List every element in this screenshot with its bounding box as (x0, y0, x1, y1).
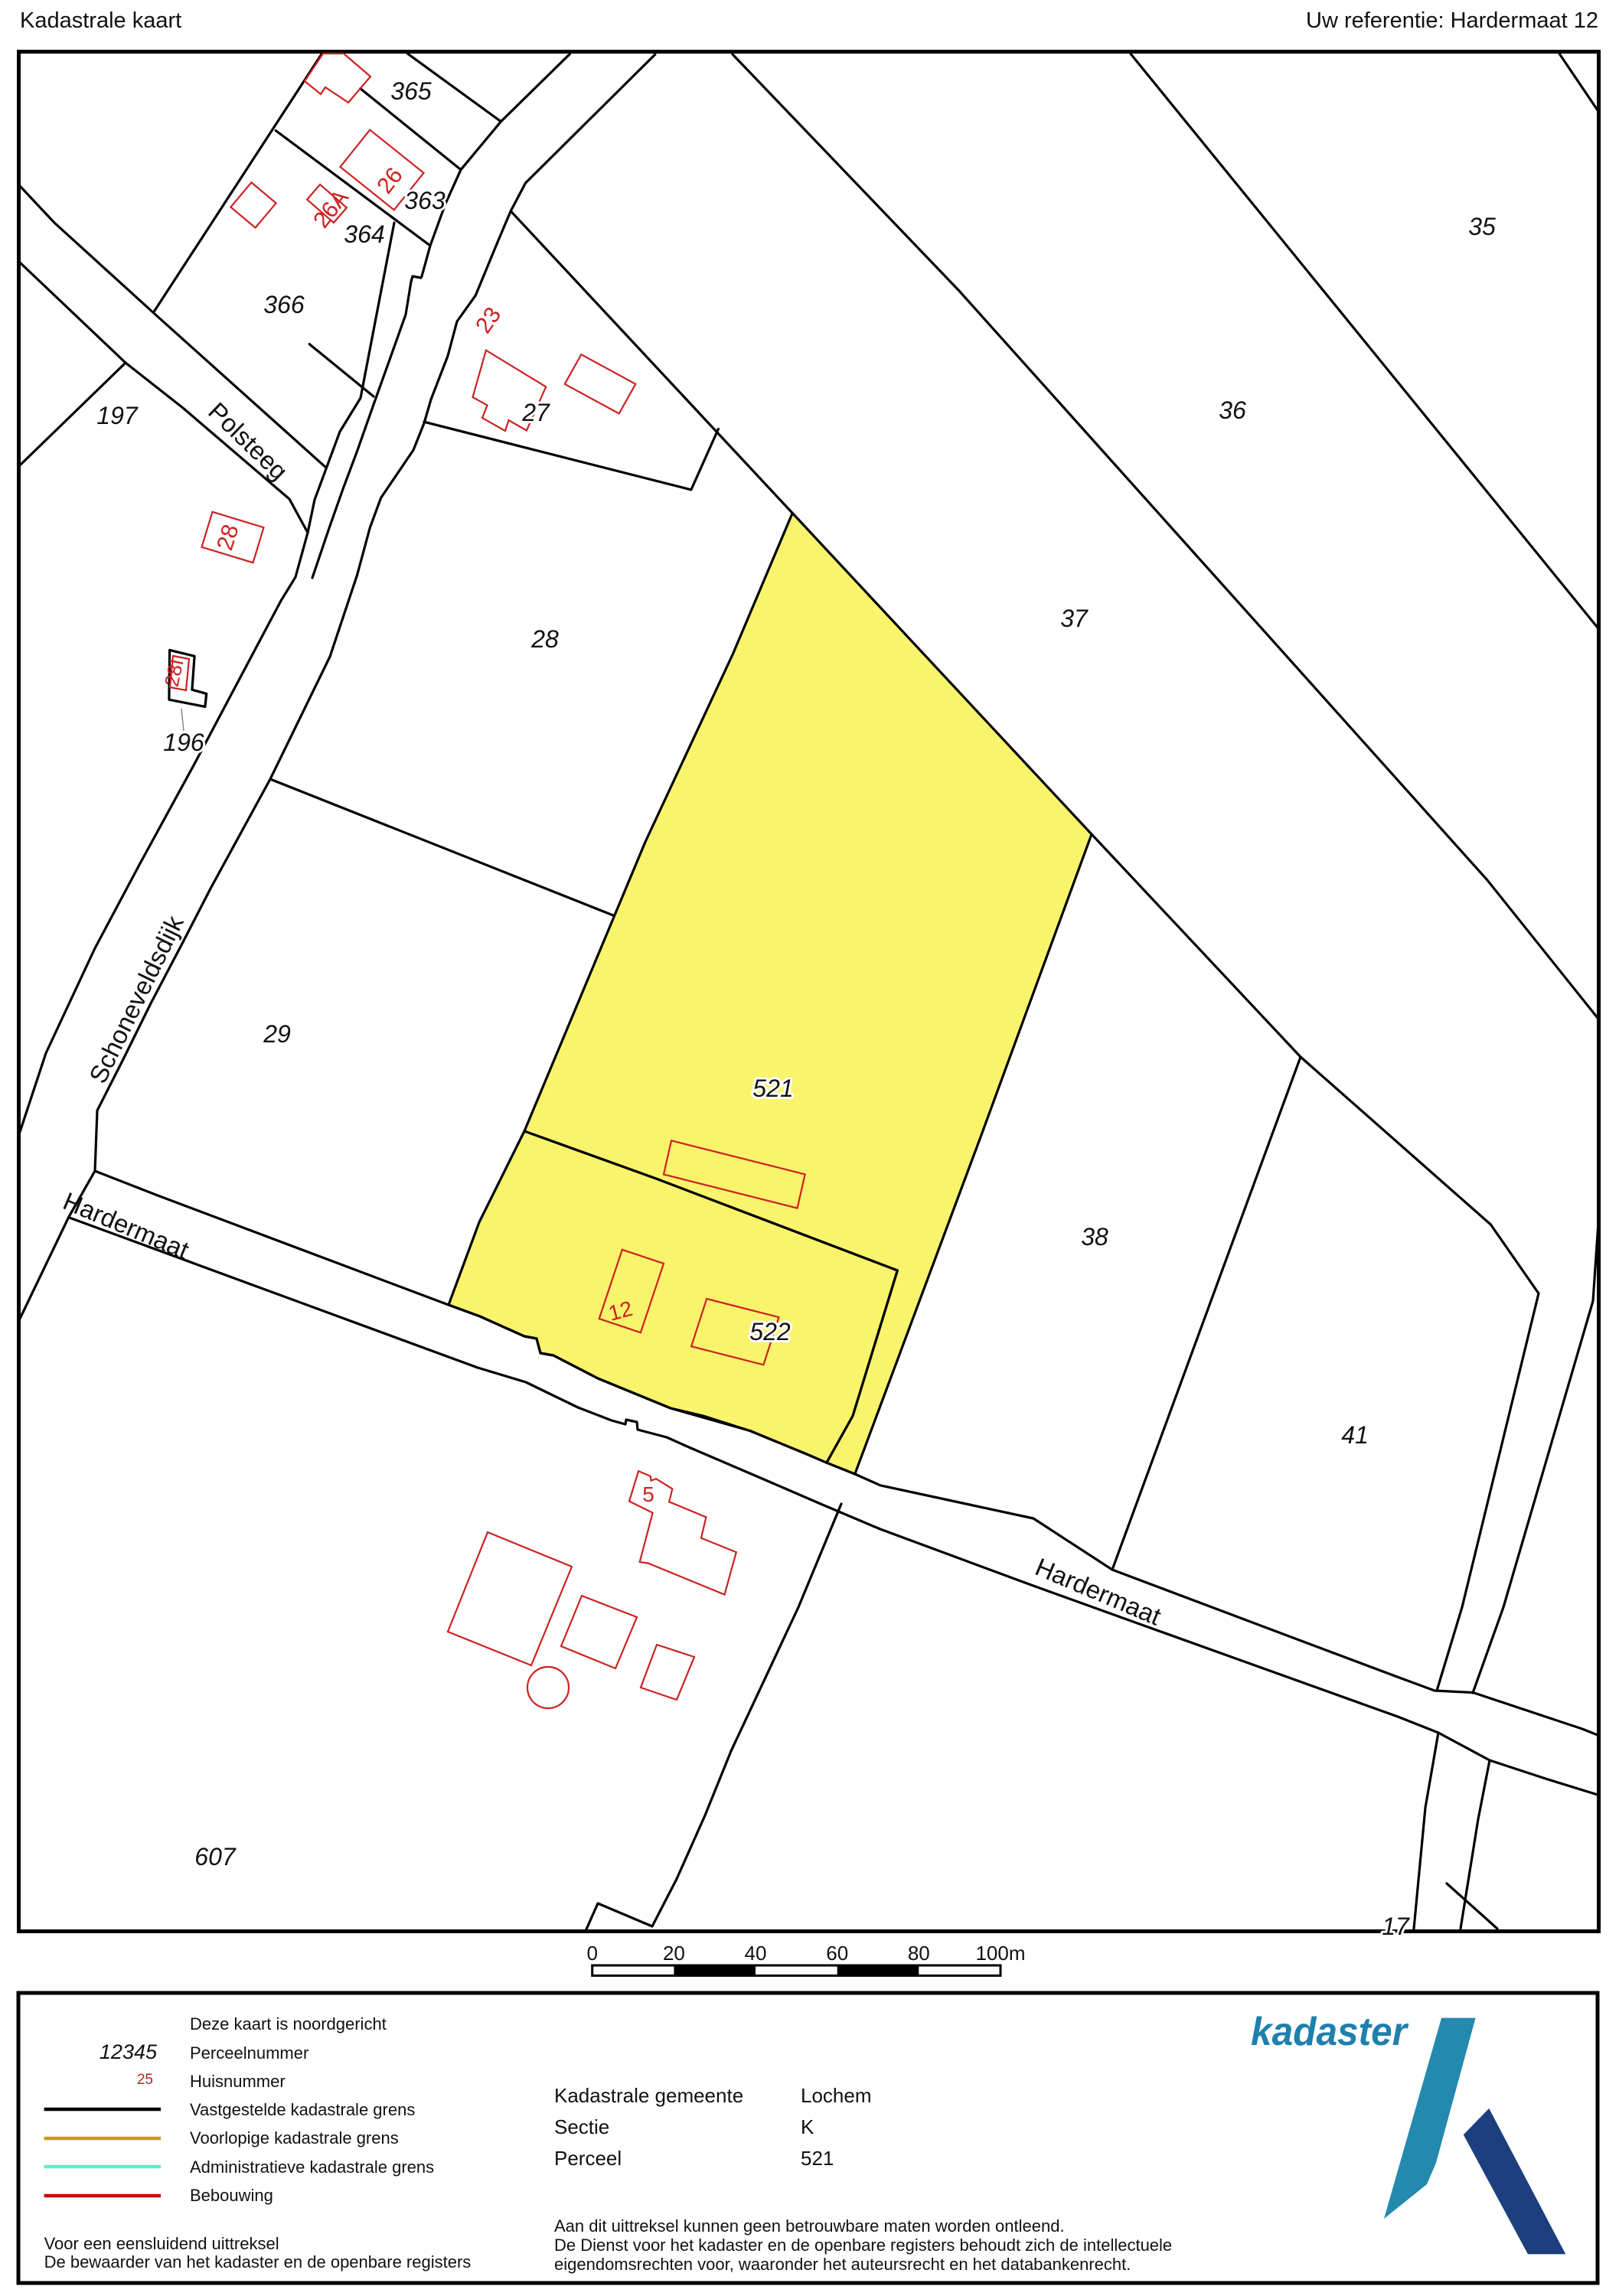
svg-text:37: 37 (1060, 605, 1089, 632)
svg-text:521: 521 (752, 1075, 793, 1102)
svg-text:365: 365 (390, 77, 432, 105)
svg-text:28: 28 (530, 625, 559, 653)
svg-text:Voor een eensluidend uittrekse: Voor een eensluidend uittreksel (44, 2234, 279, 2253)
svg-text:17: 17 (1382, 1913, 1410, 1940)
svg-text:364: 364 (344, 220, 384, 248)
svg-text:Aan dit uittreksel kunnen geen: Aan dit uittreksel kunnen geen betrouwba… (554, 2216, 1065, 2236)
svg-text:100m: 100m (975, 1942, 1025, 1965)
svg-text:196: 196 (163, 729, 204, 756)
svg-text:Deze kaart is noordgericht: Deze kaart is noordgericht (190, 2014, 387, 2033)
svg-text:Perceelnummer: Perceelnummer (190, 2043, 308, 2063)
svg-text:80: 80 (908, 1942, 930, 1965)
svg-text:De Dienst voor het kadaster en: De Dienst voor het kadaster en de openba… (554, 2236, 1172, 2255)
svg-text:363: 363 (404, 187, 446, 214)
svg-text:366: 366 (263, 291, 305, 318)
svg-text:eigendomsrechten voor, waarond: eigendomsrechten voor, waaronder het aut… (554, 2255, 1131, 2274)
svg-text:Sectie: Sectie (554, 2115, 609, 2138)
svg-text:Uw referentie: Hardermaat 12: Uw referentie: Hardermaat 12 (1306, 8, 1598, 33)
svg-text:Lochem: Lochem (801, 2084, 872, 2107)
svg-text:40: 40 (745, 1942, 767, 1965)
svg-text:5: 5 (642, 1482, 654, 1506)
svg-text:De bewaarder van het kadaster: De bewaarder van het kadaster en de open… (44, 2252, 472, 2272)
svg-text:521: 521 (801, 2147, 834, 2170)
svg-text:20: 20 (663, 1942, 685, 1965)
svg-text:36: 36 (1219, 396, 1246, 424)
svg-text:25: 25 (137, 2072, 153, 2088)
svg-text:0: 0 (586, 1942, 597, 1965)
svg-text:27: 27 (521, 399, 550, 426)
svg-text:Administratieve kadastrale gre: Administratieve kadastrale grens (190, 2157, 434, 2177)
svg-text:Voorlopige kadastrale grens: Voorlopige kadastrale grens (190, 2128, 399, 2148)
svg-text:522: 522 (749, 1318, 791, 1345)
svg-text:Kadastrale kaart: Kadastrale kaart (20, 8, 181, 33)
svg-text:kadaster: kadaster (1251, 2010, 1409, 2054)
svg-text:Perceel: Perceel (554, 2147, 622, 2170)
svg-text:Huisnummer: Huisnummer (190, 2072, 286, 2091)
svg-text:Bebouwing: Bebouwing (190, 2186, 273, 2205)
svg-text:29: 29 (263, 1020, 291, 1048)
svg-text:60: 60 (826, 1942, 848, 1965)
svg-text:38: 38 (1081, 1223, 1108, 1251)
svg-text:Kadastrale gemeente: Kadastrale gemeente (554, 2084, 743, 2107)
svg-text:35: 35 (1468, 213, 1496, 240)
svg-text:K: K (801, 2115, 814, 2138)
svg-text:12345: 12345 (100, 2040, 158, 2063)
svg-text:607: 607 (194, 1843, 237, 1870)
svg-text:197: 197 (96, 402, 139, 429)
svg-text:41: 41 (1341, 1421, 1369, 1449)
svg-text:Vastgestelde kadastrale grens: Vastgestelde kadastrale grens (190, 2100, 415, 2119)
